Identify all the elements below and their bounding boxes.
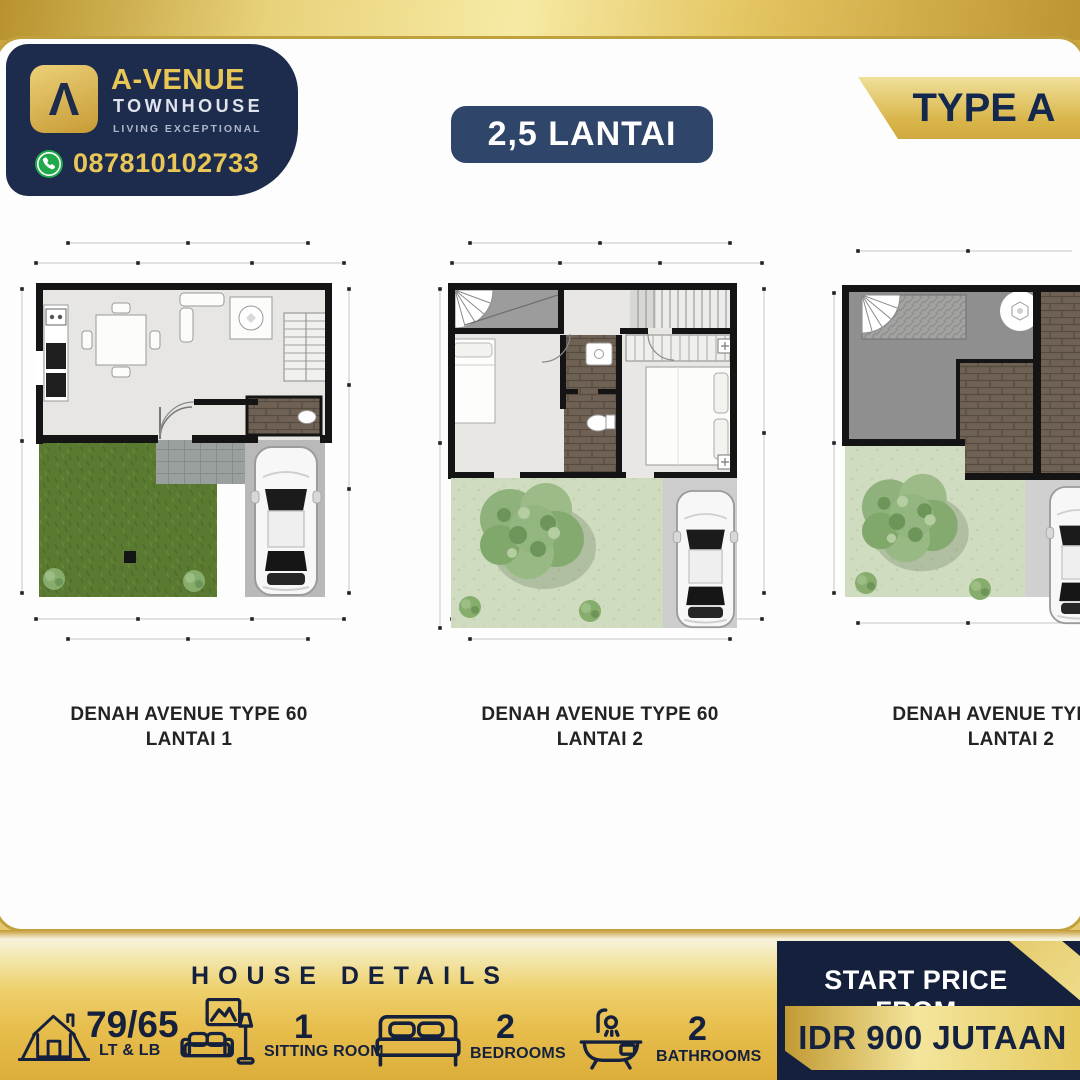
plant bbox=[459, 596, 481, 618]
lambda-glyph: Λ bbox=[49, 76, 80, 122]
stat-sitting-room-label: SITTING ROOM bbox=[264, 1043, 384, 1061]
roof-tiles bbox=[958, 361, 1035, 477]
roof-tiles-right bbox=[1041, 285, 1080, 480]
brand-subtitle: TOWNHOUSE bbox=[113, 96, 263, 117]
stat-bedrooms-value: 2 bbox=[496, 1008, 515, 1047]
bed-icon bbox=[374, 1012, 462, 1068]
brand-logo-mark: Λ bbox=[30, 65, 98, 133]
stat-bathrooms-value: 2 bbox=[688, 1010, 707, 1049]
floorplan-lantai2 bbox=[430, 233, 770, 653]
whatsapp-icon bbox=[34, 149, 64, 179]
stat-sitting-room-value: 1 bbox=[294, 1008, 313, 1047]
floorplan-1-caption: DENAH AVENUE TYPE 60 LANTAI 1 bbox=[8, 702, 370, 752]
floorplan-3-caption: DENAH AVENUE TYPE 60 LANTAI 2 bbox=[830, 702, 1080, 752]
floorplan-lantai1 bbox=[8, 233, 370, 653]
plant bbox=[183, 570, 205, 592]
floorplan-2-caption: DENAH AVENUE TYPE 60 LANTAI 2 bbox=[430, 702, 770, 752]
bathtub-icon bbox=[576, 1004, 646, 1074]
plant bbox=[969, 578, 991, 600]
brand-badge: Λ A-VENUE TOWNHOUSE LIVING EXCEPTIONAL 0… bbox=[6, 44, 298, 196]
window bbox=[36, 351, 43, 385]
car-topview bbox=[251, 447, 321, 595]
floors-badge: 2,5 LANTAI bbox=[451, 106, 713, 163]
plant bbox=[579, 600, 601, 622]
stat-land-building-label: LT & LB bbox=[99, 1042, 161, 1060]
flyer: Λ A-VENUE TOWNHOUSE LIVING EXCEPTIONAL 0… bbox=[0, 0, 1080, 1080]
plant bbox=[855, 572, 877, 594]
floorplan-roof bbox=[828, 233, 1080, 653]
brand-name: A-VENUE bbox=[111, 64, 245, 97]
stat-land-building-value: 79/65 bbox=[86, 1004, 179, 1046]
stat-bathrooms-label: BATHROOMS bbox=[656, 1048, 762, 1066]
top-gold-band bbox=[0, 0, 1080, 40]
plant bbox=[43, 568, 65, 590]
stairs bbox=[284, 313, 328, 381]
stat-bedrooms-label: BEDROOMS bbox=[470, 1045, 566, 1063]
house-details-title: HOUSE DETAILS bbox=[150, 962, 550, 991]
patio bbox=[156, 440, 245, 484]
sitting-room-icon bbox=[180, 998, 258, 1066]
brand-tagline: LIVING EXCEPTIONAL bbox=[113, 123, 262, 135]
price-value: IDR 900 JUTAAN bbox=[798, 1019, 1067, 1056]
house-icon bbox=[18, 1004, 90, 1064]
stairs bbox=[630, 286, 730, 328]
car-topview bbox=[673, 491, 737, 627]
phone-row: 087810102733 bbox=[34, 148, 259, 179]
wardrobe bbox=[626, 335, 730, 361]
car-topview bbox=[1046, 487, 1080, 623]
price-banner: IDR 900 JUTAAN bbox=[785, 1006, 1080, 1070]
phone-number: 087810102733 bbox=[73, 148, 259, 179]
price-card: START PRICE FROM IDR 900 JUTAAN bbox=[777, 941, 1080, 1080]
